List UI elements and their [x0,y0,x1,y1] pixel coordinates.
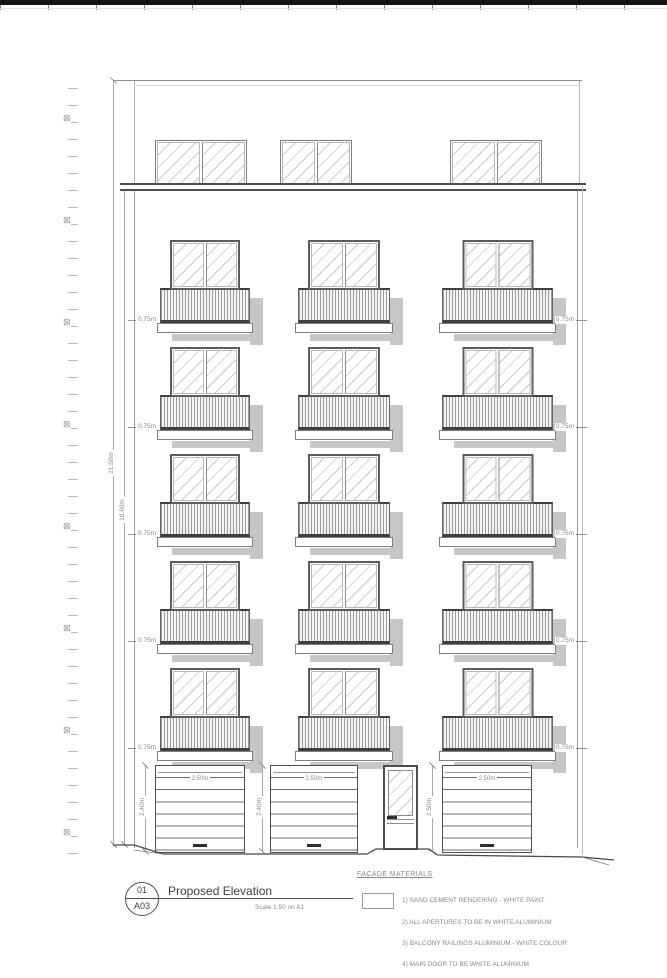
door-glazing [388,770,413,816]
glazing-pane [497,142,540,184]
balcony-slab [439,430,556,440]
dim-balcony-rail: 0.75m [555,530,575,538]
balcony-railing [298,288,390,323]
glazing-pane [173,243,204,287]
dim-garage-width: 2.50m [445,767,529,777]
balcony-slab [439,644,556,654]
dim-garage-height-label: 2.50m [426,796,434,818]
balcony-unit [160,561,250,662]
balcony-door-window [308,240,380,290]
crossed-box-icon: ⊠ [63,726,71,735]
balcony-unit [442,668,553,769]
dim-overall-height-label: 21.50m [108,450,116,476]
crossed-box-icon: ⊠ [63,828,71,837]
balcony-unit [442,561,553,662]
glazing-pane [499,350,531,394]
balcony-slab [157,537,253,547]
balcony-unit [442,240,553,341]
glazing-pane [206,671,237,715]
roof-window [155,140,247,186]
balcony-railing [160,288,250,323]
dim-balcony-rail: 0.75m [555,744,575,752]
glazing-pane [311,564,343,608]
balcony-railing [442,288,553,323]
crossed-box-icon: ⊠ [63,522,71,531]
balcony-unit [298,454,390,555]
balcony-shadow [454,334,566,341]
glazing-pane [173,457,204,501]
left-tick-strip [68,88,78,854]
glazing-pane [206,243,237,287]
glazing-pane [311,671,343,715]
glazing-pane [173,350,204,394]
glazing-pane [311,243,343,287]
balcony-shadow [310,334,403,341]
balcony-unit [160,347,250,448]
material-note: 1) SAND CEMENT RENDERING - WHITE PAINT [402,897,545,904]
glazing-pane [311,350,343,394]
balcony-shadow [454,548,566,555]
balcony-shadow [310,441,403,448]
dim-garage-width: 2.50m [273,767,355,777]
balcony-railing [298,609,390,644]
cornice-band [120,183,586,191]
dim-balcony-rail: 0.75m [137,637,157,645]
balcony-unit [298,347,390,448]
detail-number: 01 [126,883,158,899]
balcony-railing [298,395,390,430]
balcony-railing [442,395,553,430]
roof-window [280,140,352,186]
dim-balcony-rail: 0.75m [137,423,157,431]
balcony-door-window [462,347,533,397]
glazing-pane [452,142,495,184]
dim-balcony-rail: 0.75m [555,316,575,324]
party-wall-line-right [582,186,583,855]
balcony-shadow [310,548,403,555]
balcony-door-window [170,240,240,290]
crossed-box-icon: ⊠ [63,216,71,225]
dim-garage-width: 2.50m [158,767,242,777]
drawing-sheet: ⊠ ⊠ ⊠ ⊠ ⊠ ⊠ ⊠ ⊠ 21.50m 18.60m 0.75m 0.75… [0,0,667,978]
balcony-door-window [170,668,240,718]
balcony-unit [442,454,553,555]
material-note: 3) BALCONY RAILINGS ALUMINIUM - WHITE CO… [402,940,567,947]
door-mid-rail [387,819,414,820]
balcony-slab [157,323,253,333]
door-handle [387,816,397,819]
glazing-pane [311,457,343,501]
balcony-railing [160,395,250,430]
balcony-slab [295,537,393,547]
dim-balcony-rail: 0.75m [137,316,157,324]
dim-balcony-rail: 0.75m [555,637,575,645]
glazing-pane [202,142,245,184]
balcony-unit [298,240,390,341]
balcony-slab [439,751,556,761]
balcony-railing [298,716,390,751]
balcony-door-window [308,668,380,718]
glazing-pane [499,243,531,287]
balcony-door-window [462,454,533,504]
drawing-title: Proposed Elevation [165,884,275,898]
glazing-pane [499,671,531,715]
balcony-railing [160,716,250,751]
balcony-slab [439,323,556,333]
ruler-bar [0,0,667,5]
glazing-pane [345,243,377,287]
material-note: 2) ALL APERTURES TO BE IN WHITE ALUMINIU… [402,919,552,926]
dim-balcony-rail: 0.75m [137,530,157,538]
detail-marker: 01 A03 [125,882,159,916]
balcony-unit [160,668,250,769]
balcony-slab [295,644,393,654]
glazing-pane [465,350,497,394]
glazing-pane [173,564,204,608]
balcony-door-window [462,561,533,611]
balcony-door-window [170,454,240,504]
roof-window [450,140,542,186]
glazing-pane [317,142,350,184]
crossed-box-icon: ⊠ [63,420,71,429]
balcony-door-window [462,668,533,718]
balcony-shadow [454,655,566,662]
balcony-slab [295,751,393,761]
door-mid-rail [387,823,414,824]
balcony-slab [295,430,393,440]
balcony-slab [439,537,556,547]
balcony-railing [160,502,250,537]
balcony-unit [442,347,553,448]
render-swatch [362,893,394,909]
balcony-railing [160,609,250,644]
dim-facade-height-label: 18.60m [119,497,127,523]
balcony-shadow [172,441,263,448]
balcony-unit [160,454,250,555]
materials-heading: FACADE MATERIALS [357,871,433,878]
penthouse-parapet-line [134,85,578,86]
balcony-door-window [308,347,380,397]
dim-garage-height-label: 2.40m [256,796,264,818]
glazing-pane [345,564,377,608]
crossed-box-icon: ⊠ [63,318,71,327]
glazing-pane [157,142,200,184]
balcony-shadow [172,548,263,555]
balcony-shadow [454,441,566,448]
balcony-slab [157,751,253,761]
glazing-pane [465,243,497,287]
dim-balcony-rail: 0.75m [555,423,575,431]
balcony-railing [442,502,553,537]
glazing-pane [499,457,531,501]
glazing-pane [465,564,497,608]
glazing-pane [206,350,237,394]
balcony-shadow [172,334,263,341]
balcony-unit [298,561,390,662]
glazing-pane [345,350,377,394]
glazing-pane [282,142,315,184]
balcony-unit [298,668,390,769]
balcony-door-window [308,561,380,611]
balcony-slab [157,430,253,440]
crossed-box-icon: ⊠ [63,114,71,123]
scale-note: Scale 1:50 on A1 [255,904,304,911]
balcony-unit [160,240,250,341]
balcony-shadow [310,655,403,662]
title-underline [150,898,353,899]
glazing-pane [173,671,204,715]
balcony-door-window [308,454,380,504]
glazing-pane [345,457,377,501]
ground-line [95,835,625,870]
glazing-pane [465,457,497,501]
balcony-railing [298,502,390,537]
glazing-pane [206,457,237,501]
balcony-slab [157,644,253,654]
glazing-pane [345,671,377,715]
balcony-shadow [172,655,263,662]
balcony-railing [442,716,553,751]
material-note: 4) MAIN DOOR TO BE WHITE ALUMINIUM [402,961,529,968]
crossed-box-icon: ⊠ [63,624,71,633]
balcony-door-window [170,561,240,611]
balcony-door-window [170,347,240,397]
dim-balcony-rail: 0.75m [137,744,157,752]
glazing-pane [465,671,497,715]
ruler-subline [0,8,667,9]
glazing-pane [499,564,531,608]
balcony-door-window [462,240,533,290]
dim-garage-height-label: 2.40m [139,796,147,818]
sheet-number: A03 [126,899,158,914]
balcony-railing [442,609,553,644]
balcony-slab [295,323,393,333]
glazing-pane [206,564,237,608]
